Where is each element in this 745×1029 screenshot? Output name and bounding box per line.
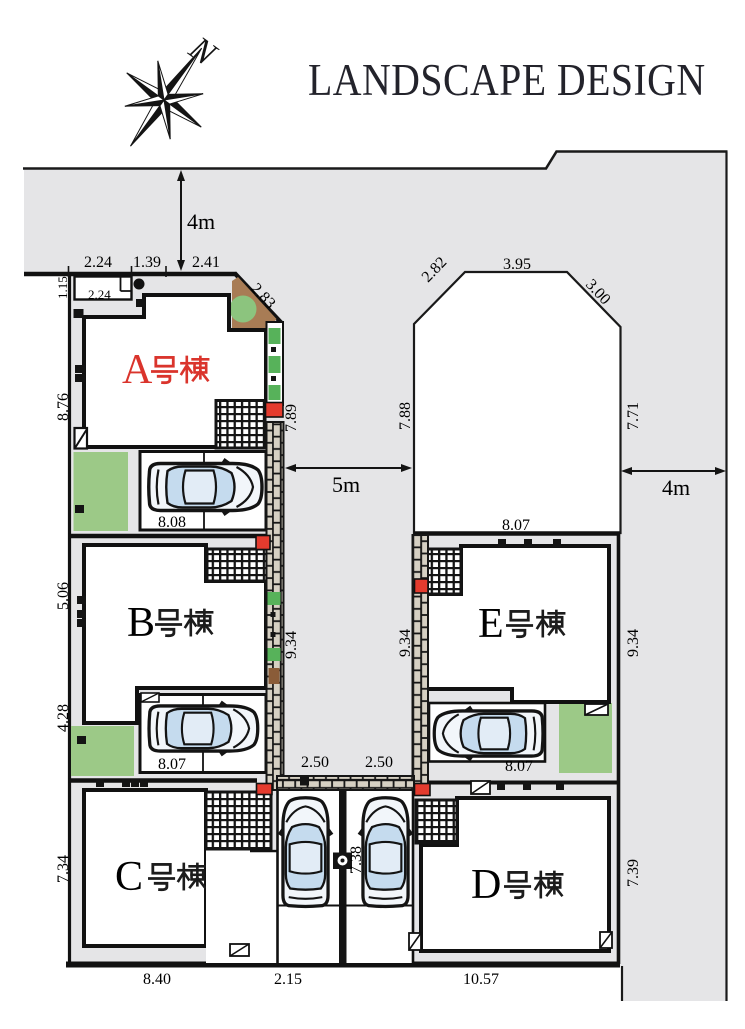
svg-text:9.34: 9.34 xyxy=(283,631,300,659)
svg-text:7.89: 7.89 xyxy=(283,404,300,432)
svg-text:4.28: 4.28 xyxy=(55,704,72,732)
svg-text:1.15: 1.15 xyxy=(55,276,70,299)
svg-text:C: C xyxy=(115,854,143,900)
svg-text:7.34: 7.34 xyxy=(55,855,72,883)
svg-text:7.39: 7.39 xyxy=(625,859,642,887)
svg-text:8.40: 8.40 xyxy=(143,971,171,988)
svg-text:2.50: 2.50 xyxy=(301,754,329,771)
svg-text:A: A xyxy=(122,347,153,393)
svg-text:2.24: 2.24 xyxy=(84,254,112,271)
svg-text:2.24: 2.24 xyxy=(88,287,111,302)
svg-text:2.15: 2.15 xyxy=(274,971,302,988)
svg-text:8.76: 8.76 xyxy=(55,393,72,421)
svg-text:8.07: 8.07 xyxy=(502,517,530,534)
svg-text:LANDSCAPE DESIGN: LANDSCAPE DESIGN xyxy=(308,56,706,106)
svg-text:9.34: 9.34 xyxy=(625,629,642,657)
svg-text:1.39: 1.39 xyxy=(133,254,161,271)
svg-text:D: D xyxy=(471,862,501,908)
svg-text:7.88: 7.88 xyxy=(397,402,414,430)
svg-text:B: B xyxy=(127,600,155,646)
svg-text:5.06: 5.06 xyxy=(55,582,72,610)
svg-text:8.08: 8.08 xyxy=(158,514,186,531)
svg-text:10.57: 10.57 xyxy=(463,971,499,988)
svg-text:5m: 5m xyxy=(332,472,360,497)
svg-text:8.07: 8.07 xyxy=(505,758,533,775)
svg-text:8.07: 8.07 xyxy=(158,756,186,773)
svg-text:7.38: 7.38 xyxy=(348,846,365,874)
svg-text:4m: 4m xyxy=(662,475,690,500)
svg-text:7.71: 7.71 xyxy=(625,402,642,430)
svg-text:9.34: 9.34 xyxy=(397,629,414,657)
svg-text:4m: 4m xyxy=(187,209,215,234)
svg-text:2.41: 2.41 xyxy=(192,254,220,271)
svg-text:3.95: 3.95 xyxy=(503,256,531,273)
svg-text:E: E xyxy=(478,601,504,647)
svg-text:2.50: 2.50 xyxy=(365,754,393,771)
